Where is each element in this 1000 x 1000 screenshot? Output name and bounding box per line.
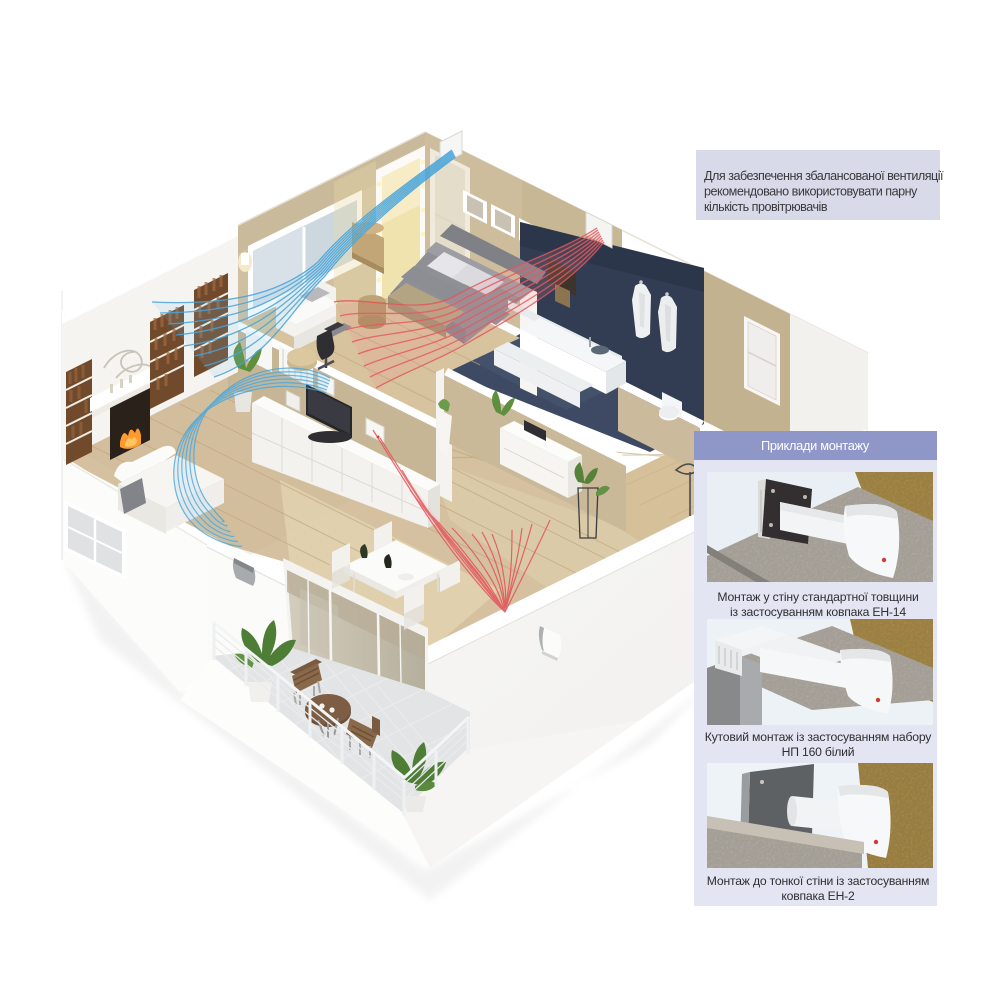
svg-text:ковпака ЕН-2: ковпака ЕН-2 bbox=[781, 889, 855, 903]
svg-text:із застосуванням ковпака ЕН-14: із застосуванням ковпака ЕН-14 bbox=[730, 605, 906, 619]
svg-text:Приклади монтажу: Приклади монтажу bbox=[761, 438, 870, 453]
svg-text:НП 160 білий: НП 160 білий bbox=[782, 745, 855, 759]
svg-text:кількість провітрювачів: кількість провітрювачів bbox=[704, 200, 828, 214]
svg-text:Монтаж до тонкої стіни із заст: Монтаж до тонкої стіни із застосуванням bbox=[707, 874, 929, 888]
svg-text:Монтаж у стіну стандартної тов: Монтаж у стіну стандартної товщини bbox=[717, 590, 918, 604]
svg-text:Для забезпечення збалансованої: Для забезпечення збалансованої вентиляці… bbox=[704, 169, 944, 183]
svg-text:Кутовий монтаж із застосування: Кутовий монтаж із застосуванням набору bbox=[705, 730, 933, 744]
svg-text:рекомендовано використовувати: рекомендовано використовувати парну bbox=[704, 185, 918, 199]
